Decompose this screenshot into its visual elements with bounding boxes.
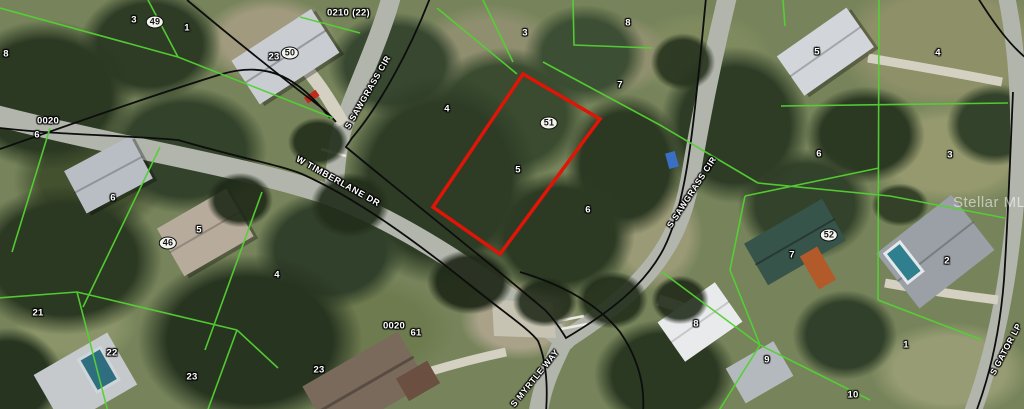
parcel-map-canvas[interactable]: 834910020623500210(22)384517565463654642…	[0, 0, 1024, 409]
aerial-imagery	[0, 0, 1024, 409]
